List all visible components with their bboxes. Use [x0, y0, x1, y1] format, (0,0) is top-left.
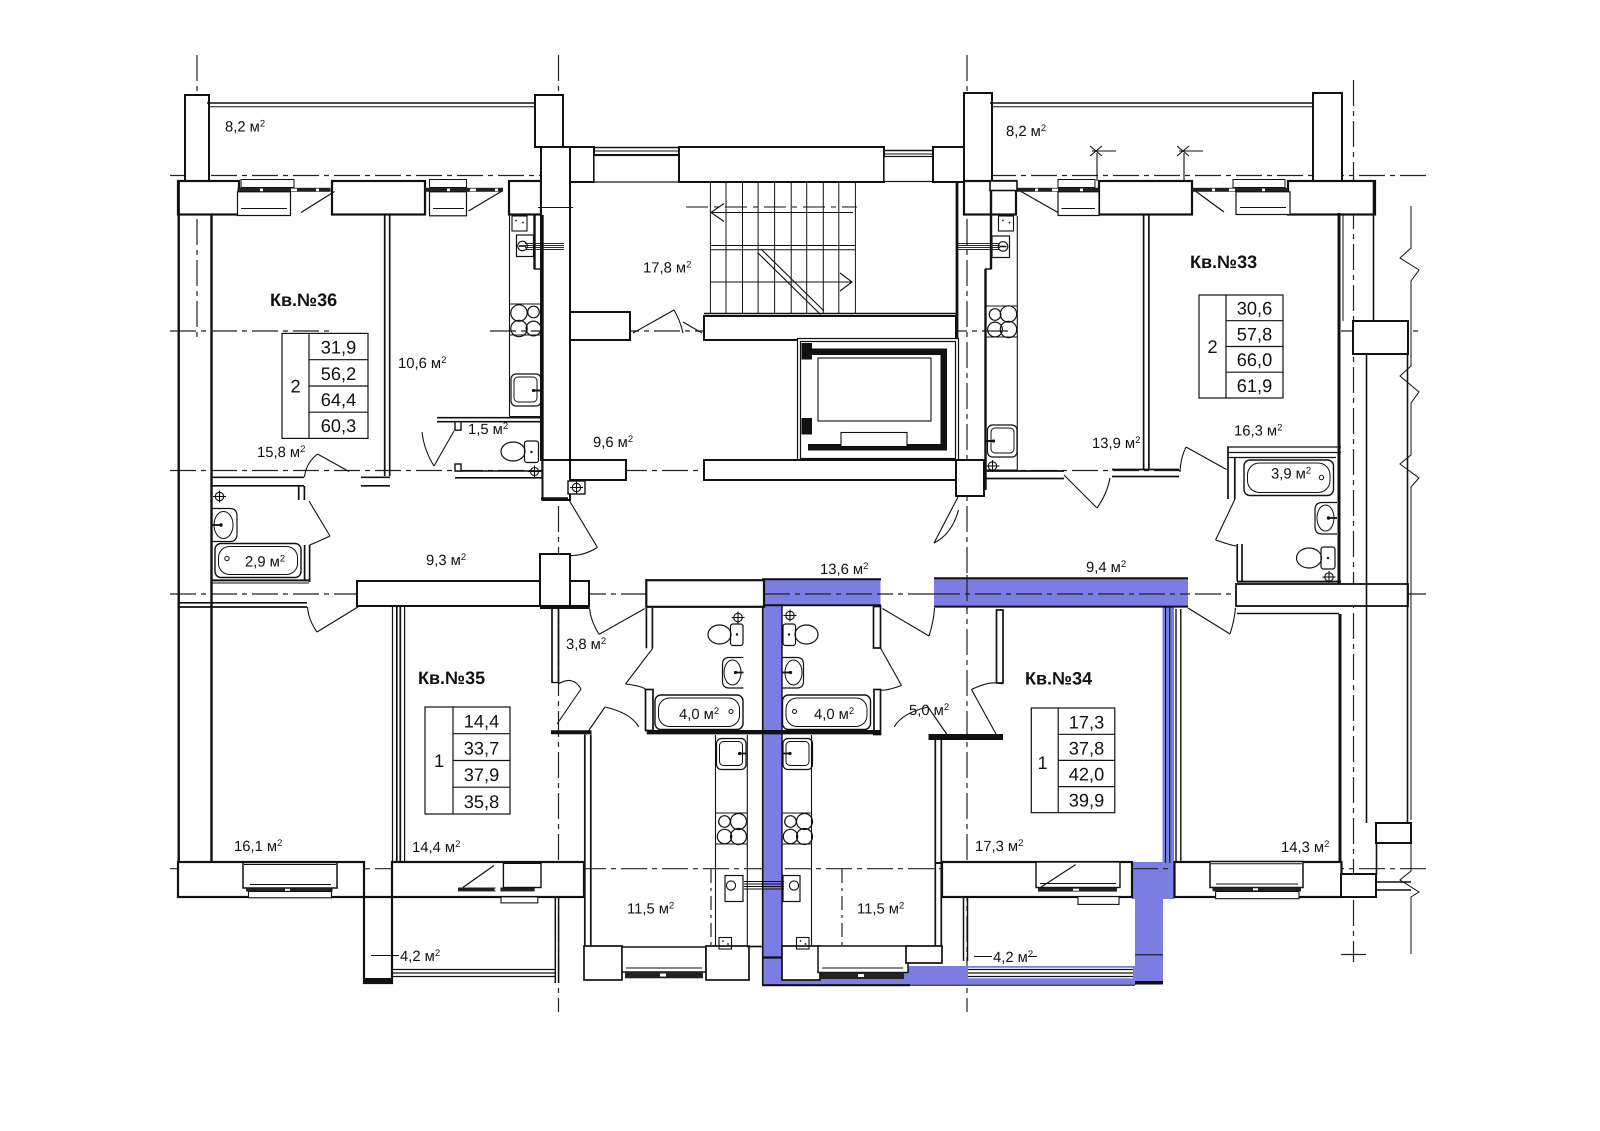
svg-text:39,9: 39,9 — [1069, 791, 1104, 811]
svg-text:10,6 м2: 10,6 м2 — [398, 355, 446, 372]
svg-text:33,7: 33,7 — [464, 739, 499, 759]
svg-text:Кв.№36: Кв.№36 — [270, 290, 337, 310]
svg-text:5,0 м2: 5,0 м2 — [909, 702, 949, 719]
svg-text:1: 1 — [1038, 753, 1048, 773]
svg-text:2: 2 — [290, 377, 300, 397]
svg-text:13,9 м2: 13,9 м2 — [1092, 435, 1140, 452]
svg-text:17,3 м2: 17,3 м2 — [975, 838, 1023, 855]
svg-text:3,8 м2: 3,8 м2 — [566, 636, 606, 653]
svg-text:13,6 м2: 13,6 м2 — [820, 561, 868, 578]
svg-text:4,2 м2: 4,2 м2 — [993, 949, 1033, 966]
svg-text:31,9: 31,9 — [321, 338, 356, 358]
svg-text:16,1 м2: 16,1 м2 — [234, 838, 282, 855]
svg-text:11,5 м2: 11,5 м2 — [857, 901, 904, 918]
svg-text:11,5 м2: 11,5 м2 — [627, 901, 674, 918]
svg-text:4,0 м2: 4,0 м2 — [814, 706, 854, 723]
svg-text:14,3 м2: 14,3 м2 — [1281, 839, 1329, 856]
svg-text:9,6 м2: 9,6 м2 — [593, 434, 633, 451]
svg-text:9,3 м2: 9,3 м2 — [426, 552, 466, 569]
svg-text:4,2 м2: 4,2 м2 — [400, 948, 440, 965]
svg-text:37,8: 37,8 — [1069, 738, 1104, 758]
svg-text:42,0: 42,0 — [1069, 765, 1104, 785]
svg-text:15,8 м2: 15,8 м2 — [257, 444, 305, 461]
svg-text:14,4: 14,4 — [464, 712, 499, 732]
svg-text:30,6: 30,6 — [1237, 299, 1272, 319]
svg-text:16,3 м2: 16,3 м2 — [1234, 423, 1282, 440]
svg-text:1: 1 — [434, 751, 444, 771]
svg-text:61,9: 61,9 — [1237, 376, 1272, 396]
svg-text:37,9: 37,9 — [464, 765, 499, 785]
svg-text:2,9 м2: 2,9 м2 — [245, 554, 285, 571]
svg-text:9,4 м2: 9,4 м2 — [1086, 559, 1126, 576]
svg-text:Кв.№35: Кв.№35 — [418, 668, 485, 688]
svg-text:3,9 м2: 3,9 м2 — [1271, 466, 1311, 483]
svg-text:8,2 м2: 8,2 м2 — [1006, 123, 1046, 140]
svg-text:35,8: 35,8 — [464, 792, 499, 812]
svg-text:64,4: 64,4 — [321, 390, 356, 410]
svg-text:14,4 м2: 14,4 м2 — [412, 839, 460, 856]
svg-text:2: 2 — [1207, 337, 1217, 357]
svg-text:17,3: 17,3 — [1069, 712, 1104, 732]
svg-text:4,0 м2: 4,0 м2 — [679, 706, 719, 723]
svg-text:Кв.№33: Кв.№33 — [1190, 252, 1257, 272]
svg-text:1,5 м2: 1,5 м2 — [468, 421, 508, 438]
svg-text:60,3: 60,3 — [321, 416, 356, 436]
svg-text:8,2 м2: 8,2 м2 — [225, 119, 265, 136]
svg-text:17,8 м2: 17,8 м2 — [643, 260, 691, 277]
svg-text:Кв.№34: Кв.№34 — [1025, 669, 1092, 689]
svg-text:57,8: 57,8 — [1237, 325, 1272, 345]
svg-text:56,2: 56,2 — [321, 364, 356, 384]
svg-text:66,0: 66,0 — [1237, 350, 1272, 370]
